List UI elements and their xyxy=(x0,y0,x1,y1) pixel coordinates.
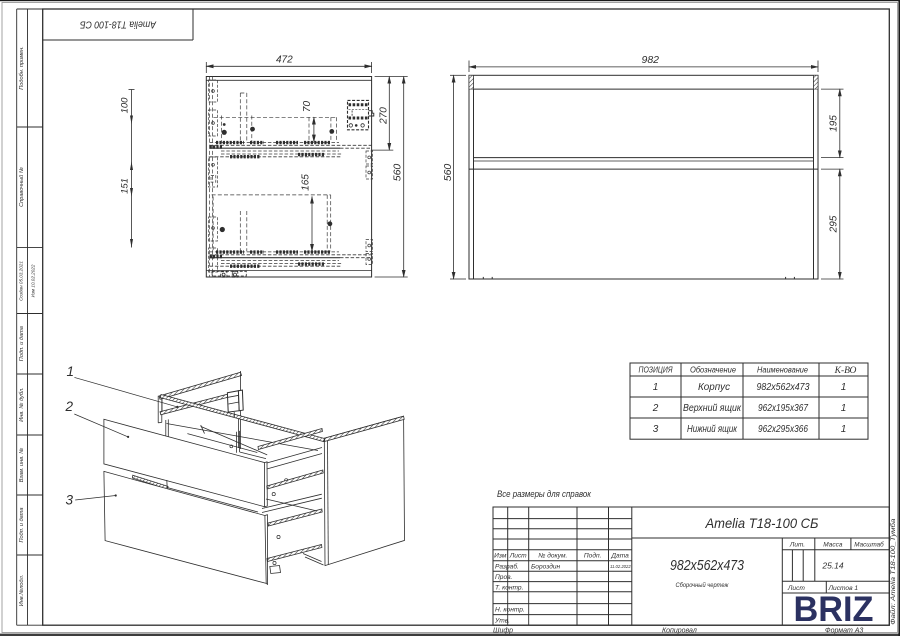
svg-text:Инв.№подл.: Инв.№подл. xyxy=(19,575,25,607)
svg-text:BRIZ: BRIZ xyxy=(794,590,874,629)
svg-text:Amelia T18-100 СБ: Amelia T18-100 СБ xyxy=(705,515,819,531)
svg-text:Т. контр.: Т. контр. xyxy=(495,584,524,591)
svg-text:Изм 10.02.2022: Изм 10.02.2022 xyxy=(31,264,36,297)
svg-text:560: 560 xyxy=(442,164,454,182)
svg-text:Справочный №: Справочный № xyxy=(18,167,25,207)
svg-text:100: 100 xyxy=(120,97,131,114)
svg-text:295: 295 xyxy=(829,215,840,233)
svg-text:Н. контр.: Н. контр. xyxy=(495,607,525,614)
svg-text:Утв.: Утв. xyxy=(494,618,510,625)
svg-text:1: 1 xyxy=(841,382,847,393)
svg-text:1: 1 xyxy=(841,403,847,414)
svg-text:Разраб.: Разраб. xyxy=(495,563,519,571)
svg-text:962х195х367: 962х195х367 xyxy=(758,403,808,414)
svg-text:195: 195 xyxy=(829,115,840,132)
svg-text:472: 472 xyxy=(276,55,293,66)
svg-text:2: 2 xyxy=(652,403,659,414)
svg-text:Изм: Изм xyxy=(494,553,507,560)
svg-text:Масштаб: Масштаб xyxy=(854,541,884,549)
svg-text:Лит.: Лит. xyxy=(789,542,805,549)
svg-text:962х295х366: 962х295х366 xyxy=(758,424,808,435)
svg-text:1: 1 xyxy=(841,424,847,435)
svg-text:Обозначение: Обозначение xyxy=(690,365,736,375)
svg-text:Подп. и дата: Подп. и дата xyxy=(19,326,25,361)
svg-text:Подобн. примен.: Подобн. примен. xyxy=(19,46,25,90)
svg-text:Создан 05.03.2021: Создан 05.03.2021 xyxy=(19,261,24,301)
svg-text:3: 3 xyxy=(66,493,74,508)
svg-text:982х562х473: 982х562х473 xyxy=(670,558,744,574)
svg-text:К-ВО: К-ВО xyxy=(834,366,857,376)
svg-text:11.02.2022: 11.02.2022 xyxy=(610,564,631,569)
svg-text:Пров.: Пров. xyxy=(495,574,513,581)
svg-text:Нижний ящик: Нижний ящик xyxy=(687,424,738,435)
svg-text:25.14: 25.14 xyxy=(821,561,844,571)
svg-text:Масса: Масса xyxy=(823,542,843,549)
svg-text:Копировал: Копировал xyxy=(662,628,697,635)
svg-text:982: 982 xyxy=(642,54,660,66)
svg-text:1: 1 xyxy=(653,382,659,393)
svg-text:Подп. и дата: Подп. и дата xyxy=(19,507,25,542)
svg-text:Все размеры для справок: Все размеры для справок xyxy=(497,489,591,500)
svg-text:70: 70 xyxy=(302,101,313,113)
svg-text:Лист: Лист xyxy=(509,553,527,560)
svg-text:Файл: Amelia Т18-100_Тумба: Файл: Amelia Т18-100_Тумба xyxy=(889,518,897,624)
svg-text:Бороздин: Бороздин xyxy=(531,563,561,571)
svg-text:Amelia T18-100 СБ: Amelia T18-100 СБ xyxy=(80,19,157,30)
svg-text:560: 560 xyxy=(392,164,404,182)
svg-text:Корпус: Корпус xyxy=(698,382,730,393)
svg-text:Верхний ящик: Верхний ящик xyxy=(683,403,742,414)
svg-text:Сборочный чертеж: Сборочный чертеж xyxy=(676,581,729,589)
svg-text:151: 151 xyxy=(120,178,131,194)
svg-text:Инв. № дубл.: Инв. № дубл. xyxy=(19,387,25,421)
svg-text:Взам. инв. №: Взам. инв. № xyxy=(19,448,25,483)
svg-text:2: 2 xyxy=(65,399,74,414)
svg-text:165: 165 xyxy=(300,174,311,191)
svg-text:Наименование: Наименование xyxy=(757,365,808,375)
svg-text:№ докум.: № докум. xyxy=(538,552,567,560)
svg-text:Шифр: Шифр xyxy=(493,628,513,635)
svg-text:3: 3 xyxy=(653,424,659,435)
svg-text:1: 1 xyxy=(67,364,75,379)
svg-text:Формат А3: Формат А3 xyxy=(825,628,863,635)
svg-text:Дата: Дата xyxy=(610,553,629,560)
svg-text:270: 270 xyxy=(378,107,389,125)
svg-text:Подп.: Подп. xyxy=(584,552,602,560)
svg-text:982х562х473: 982х562х473 xyxy=(757,382,810,393)
svg-text:ПОЗИЦИЯ: ПОЗИЦИЯ xyxy=(639,365,673,375)
